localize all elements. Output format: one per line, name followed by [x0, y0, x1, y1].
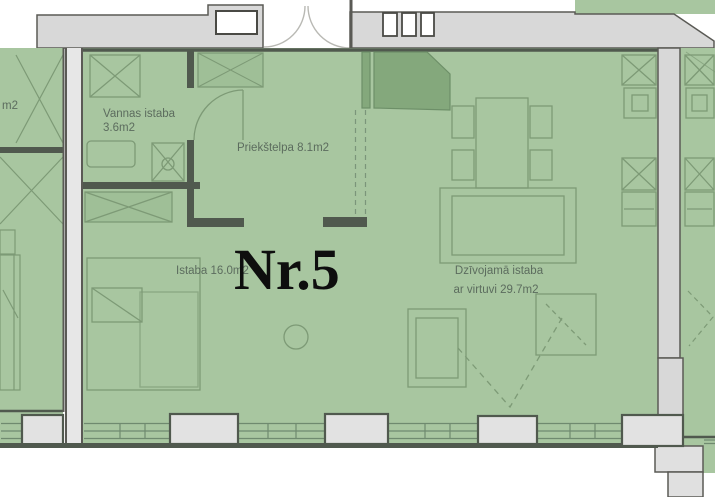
living-room-label-line1: Dzīvojamā istaba: [455, 265, 544, 277]
neighbor-area-label: m2: [2, 100, 18, 112]
neighbor-wall-pier: [22, 415, 63, 445]
bathroom-area-label: 3.6m2: [103, 122, 135, 134]
wall-pier: [170, 414, 238, 444]
shaft-windows: [383, 13, 434, 36]
floor-plan-drawing: Vannas istaba 3.6m2 Priekštelpa 8.1m2 Is…: [0, 0, 715, 497]
neighbor-right-apartment: [680, 48, 715, 473]
apartment-number: Nr.5: [234, 237, 340, 302]
stairwell-window: [216, 11, 257, 34]
hallway-closet: [198, 53, 263, 87]
left-wall: [65, 48, 83, 446]
living-room-label-line2: ar virtuvi 29.7m2: [453, 284, 538, 296]
hallway-label: Priekštelpa 8.1m2: [237, 142, 329, 154]
neighbor-above-room: [575, 0, 715, 14]
floor-plan: Vannas istaba 3.6m2 Priekštelpa 8.1m2 Is…: [0, 0, 715, 497]
room-door-stub: [323, 217, 367, 227]
wall-pier: [325, 414, 388, 444]
entrance-vestibule-shape: [362, 52, 450, 110]
wall-pier: [478, 416, 537, 444]
wall-pier: [622, 415, 683, 446]
bathroom-label: Vannas istaba: [103, 108, 176, 120]
